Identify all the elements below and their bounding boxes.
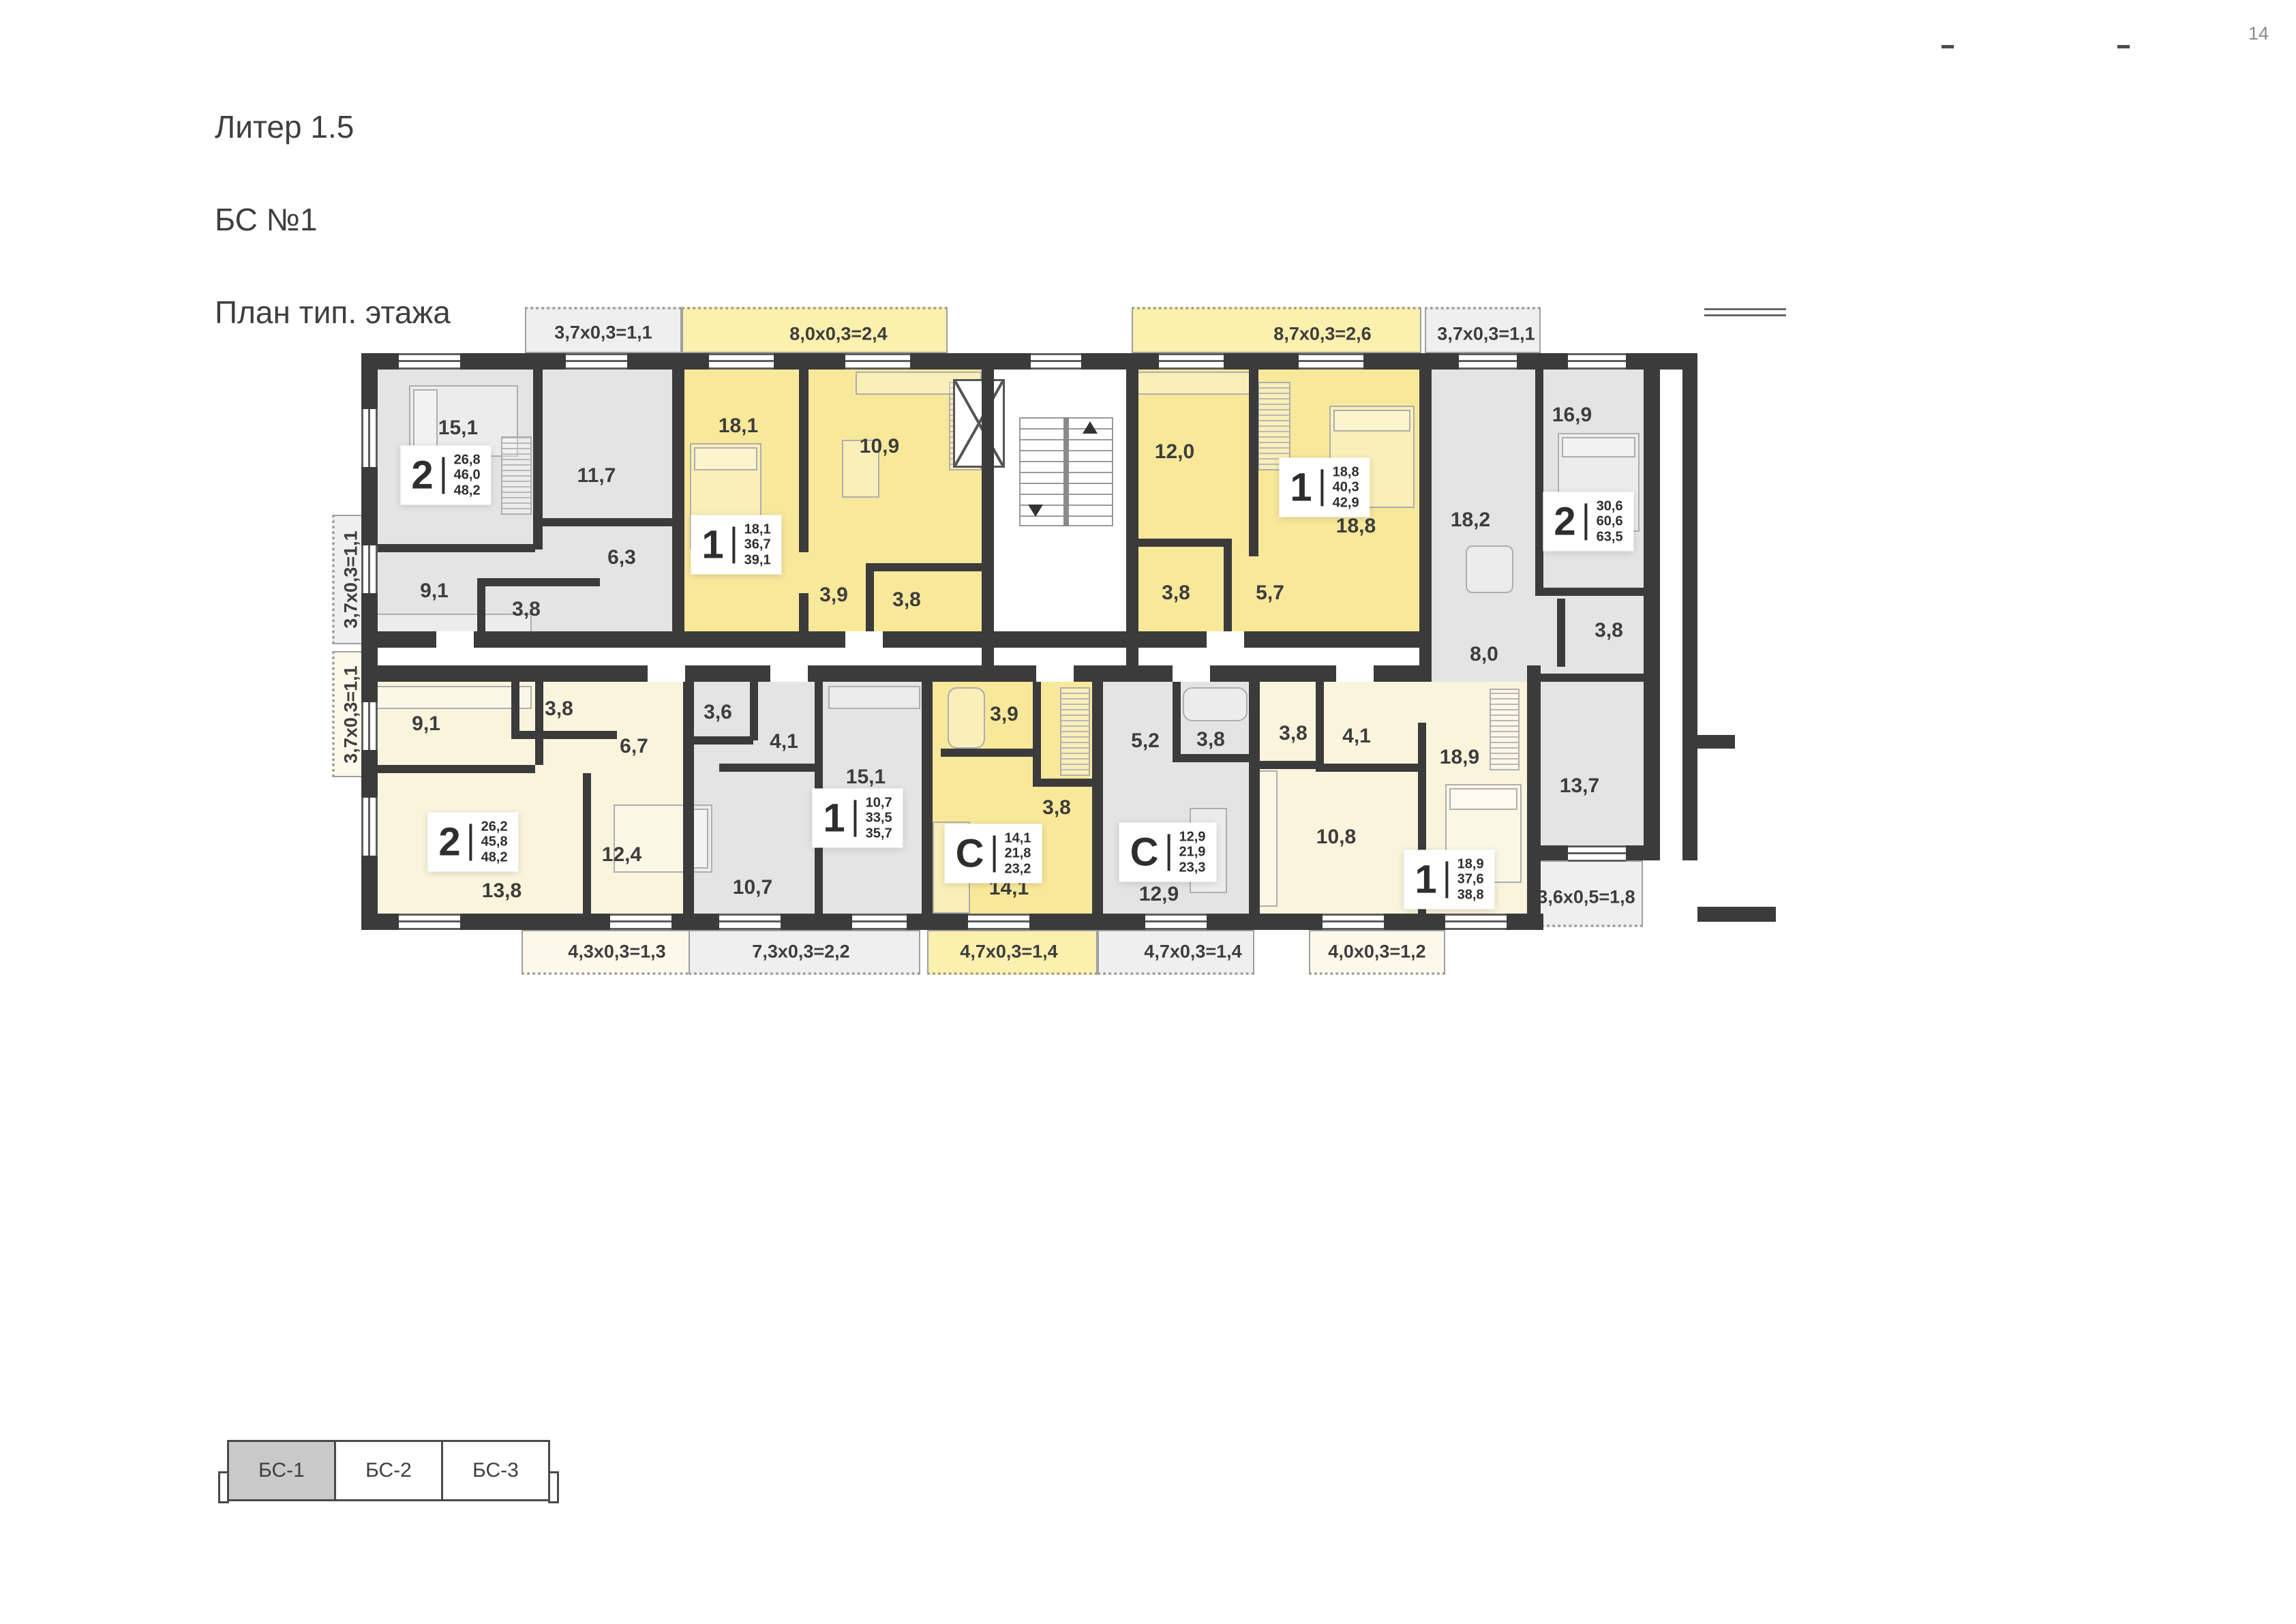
partition — [799, 368, 809, 552]
partition — [372, 544, 535, 552]
stairs-down-arrow-icon — [1028, 505, 1043, 517]
window — [361, 545, 378, 593]
partition — [1173, 682, 1181, 758]
apartment-badge: 1 18,937,638,8 — [1404, 849, 1494, 909]
window — [1459, 353, 1517, 370]
neighbor-wall — [1697, 735, 1735, 749]
window — [1159, 353, 1224, 370]
apartment-badge: 2 26,846,048,2 — [400, 445, 491, 505]
window — [1145, 914, 1207, 930]
room-area-label: 3,9 — [819, 584, 848, 607]
room-area-label: 3,8 — [1279, 722, 1308, 745]
partition — [866, 563, 874, 640]
partition — [1251, 761, 1316, 769]
window — [361, 702, 378, 750]
crop-mark — [2117, 45, 2130, 48]
bathtub — [948, 687, 985, 749]
door-opening — [1036, 665, 1074, 682]
room-area-label: 18,1 — [719, 415, 758, 438]
apartment-badge: 1 18,840,342,9 — [1279, 457, 1370, 517]
room-area-label: 18,8 — [1336, 515, 1376, 538]
window — [709, 353, 774, 370]
room-area-label: 3,6 — [704, 701, 732, 724]
neighbor-railing — [1704, 308, 1786, 316]
wardrobe — [1490, 689, 1520, 770]
room-area-label: 12,4 — [602, 843, 641, 867]
wall — [1249, 682, 1260, 914]
apartment-type: 2 — [1554, 502, 1575, 541]
partition — [533, 518, 684, 526]
page-title: Литер 1.5 БС №1 План тип. этажа — [215, 104, 451, 335]
wall — [1092, 682, 1103, 914]
tab-bs-3[interactable]: БС-3 — [441, 1440, 550, 1501]
apartment-type: 1 — [1290, 468, 1312, 507]
room-area-label: 18,2 — [1451, 509, 1490, 532]
partition — [685, 736, 753, 745]
kitchen-counter — [375, 686, 532, 709]
window — [1299, 353, 1363, 370]
room-area-label: 4,1 — [1342, 725, 1371, 748]
balcony-dim-label: 4,7x0,3=1,4 — [960, 942, 1057, 963]
apartment-badge: 1 18,136,739,1 — [691, 515, 781, 574]
apartment-type: 2 — [411, 455, 433, 495]
apartment-type: 1 — [701, 525, 723, 565]
partition — [583, 773, 591, 914]
window — [719, 914, 781, 930]
wall — [1527, 665, 1541, 914]
window — [399, 353, 460, 370]
room-area-label: 5,7 — [1256, 582, 1284, 605]
room-area-label: 8,0 — [1470, 643, 1498, 666]
kitchen-counter — [828, 686, 920, 709]
room-area-label: 10,8 — [1316, 826, 1356, 849]
window — [1031, 353, 1081, 370]
balcony-dim-label: 4,0x0,3=1,2 — [1328, 942, 1425, 963]
room-area-label: 13,8 — [482, 879, 522, 903]
balcony-dim-label: 4,7x0,3=1,4 — [1144, 942, 1241, 963]
wardrobe — [501, 436, 532, 515]
partition — [372, 765, 535, 773]
apartment-badge: С 12,921,923,3 — [1119, 822, 1217, 882]
room-area-label: 10,7 — [733, 876, 772, 899]
window — [968, 914, 1029, 930]
partition — [511, 682, 519, 736]
wall — [361, 631, 1425, 648]
title-line-1: Литер 1.5 — [215, 109, 354, 145]
kitchen-counter — [1132, 372, 1258, 395]
balcony-dim-label: 8,0x0,3=2,4 — [789, 324, 887, 345]
partition — [511, 731, 617, 739]
tab-label: БС-1 — [258, 1459, 305, 1482]
wall — [982, 353, 994, 682]
room-area-label: 15,1 — [438, 417, 478, 440]
window — [1568, 353, 1626, 370]
door-opening — [1207, 631, 1244, 648]
balcony-dim-label: 3,6x0,5=1,8 — [1537, 887, 1635, 908]
window — [399, 914, 460, 930]
room-area-label: 9,1 — [420, 580, 449, 603]
bed-pillow — [694, 447, 757, 470]
room-area-label: 16,9 — [1552, 404, 1592, 427]
partition — [719, 764, 815, 772]
apartment-type: 1 — [823, 798, 845, 838]
wall — [1419, 353, 1432, 682]
balcony-dim-label: 3,7x0,3=1,1 — [341, 530, 362, 628]
partition — [535, 682, 543, 765]
room-area-label: 3,8 — [512, 598, 541, 621]
wall — [672, 353, 684, 648]
neighbor-wall — [1682, 353, 1697, 860]
partition — [1541, 674, 1644, 682]
tab-bs-2[interactable]: БС-2 — [334, 1440, 443, 1501]
balcony-dim-label: 3,7x0,3=1,1 — [1437, 324, 1535, 345]
apartment-badge: 2 26,245,848,2 — [427, 812, 518, 871]
partition — [1535, 588, 1644, 596]
room-area-label: 3,8 — [1042, 796, 1071, 819]
partition — [1138, 539, 1232, 547]
bed-pillow — [1333, 410, 1410, 432]
partition — [1224, 539, 1232, 640]
balcony-dim-label: 3,7x0,3=1,1 — [341, 665, 362, 763]
door-opening — [770, 665, 808, 682]
partition — [866, 563, 985, 571]
bed-pillow — [1449, 788, 1517, 810]
bed-pillow — [1562, 437, 1635, 457]
room-area-label: 12,0 — [1155, 440, 1194, 464]
room-area-label: 3,8 — [1162, 582, 1190, 605]
stair-rail — [1063, 417, 1069, 526]
partition — [477, 578, 600, 586]
window — [610, 914, 671, 930]
balcony-dim-label: 8,7x0,3=2,6 — [1273, 324, 1371, 345]
apartment-badge: 2 30,660,663,5 — [1543, 492, 1633, 551]
partition — [799, 593, 809, 640]
neighbor-wall — [1697, 907, 1776, 922]
wall — [1644, 353, 1660, 860]
apartment-badge: С 14,121,823,2 — [945, 824, 1042, 883]
tab-label: БС-3 — [472, 1459, 519, 1482]
partition — [1033, 779, 1094, 787]
table — [1466, 545, 1513, 593]
elevator-shaft-icon — [953, 379, 1005, 468]
apartment-a4-wing-area — [1530, 682, 1644, 845]
window — [1445, 914, 1507, 930]
room-area-label: 3,8 — [545, 697, 573, 721]
bathtub — [1183, 687, 1248, 721]
partition — [1316, 682, 1324, 765]
door-opening — [1336, 665, 1374, 682]
room-area-label: 4,1 — [770, 730, 798, 753]
partition — [1249, 368, 1258, 556]
window — [566, 353, 627, 370]
footprint-notch — [548, 1471, 559, 1503]
door-opening — [1173, 665, 1210, 682]
partition — [477, 578, 485, 640]
room-area-label: 3,9 — [990, 703, 1018, 726]
apartment-badge: 1 10,733,535,7 — [812, 788, 903, 847]
title-line-2: БС №1 — [215, 202, 318, 237]
wall — [922, 682, 933, 914]
room-area-label: 6,3 — [607, 546, 636, 569]
title-line-3: План тип. этажа — [215, 295, 451, 330]
partition — [1033, 682, 1041, 783]
stairs-up-arrow-icon — [1083, 421, 1098, 434]
apartment-type: С — [1130, 832, 1159, 872]
partition — [1535, 368, 1543, 593]
room-area-label: 3,8 — [1595, 619, 1623, 642]
door-opening — [648, 665, 685, 682]
window — [845, 353, 910, 370]
window — [852, 914, 907, 930]
door-opening — [845, 631, 883, 648]
window — [361, 798, 378, 856]
wall — [361, 665, 1425, 682]
room-area-label: 18,9 — [1440, 746, 1479, 769]
balcony-dim-label: 4,3x0,3=1,3 — [568, 942, 665, 963]
room-area-label: 5,2 — [1131, 730, 1160, 753]
tab-label: БС-2 — [365, 1459, 412, 1482]
page-number: 14 — [2248, 23, 2269, 44]
room-area-label: 15,1 — [846, 766, 886, 789]
wall — [1126, 353, 1138, 682]
apartment-type: С — [956, 834, 984, 873]
partition — [941, 749, 1033, 757]
bed-pillow — [413, 389, 438, 453]
door-opening — [436, 631, 474, 648]
balcony-dim-label: 3,7x0,3=1,1 — [554, 322, 652, 344]
tab-bs-1[interactable]: БС-1 — [227, 1440, 336, 1501]
window — [1568, 845, 1626, 862]
window — [361, 409, 378, 467]
partition — [1173, 754, 1251, 762]
room-area-label: 9,1 — [412, 712, 440, 736]
wardrobe — [1060, 687, 1090, 776]
apartment-type: 1 — [1415, 860, 1436, 899]
room-area-label: 6,7 — [620, 735, 648, 758]
room-area-label: 12,9 — [1139, 883, 1179, 906]
partition — [750, 682, 758, 740]
partition — [1557, 599, 1565, 667]
room-area-label: 11,7 — [577, 464, 616, 487]
partition — [1316, 764, 1425, 772]
balcony-dim-label: 7,3x0,3=2,2 — [752, 942, 849, 963]
room-area-label: 13,7 — [1560, 775, 1599, 798]
wall — [683, 682, 694, 914]
apartment-type: 2 — [438, 822, 460, 862]
window — [1323, 914, 1384, 930]
crop-mark — [1942, 45, 1954, 48]
room-area-label: 3,8 — [892, 588, 921, 612]
room-area-label: 10,9 — [860, 435, 899, 458]
room-area-label: 3,8 — [1196, 728, 1225, 751]
